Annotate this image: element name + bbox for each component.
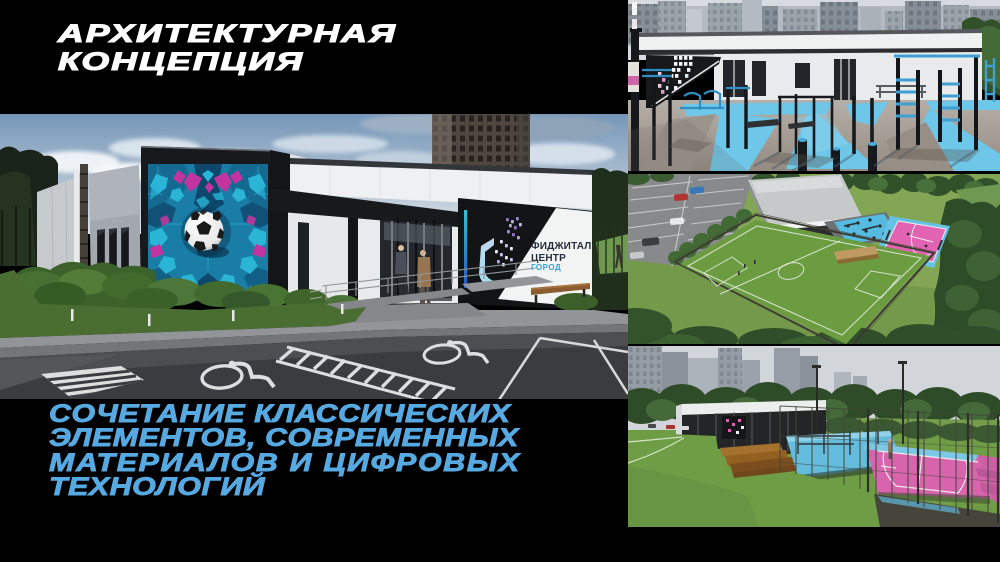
svg-text:ГОРОД: ГОРОД bbox=[531, 263, 561, 272]
svg-text:ФИДЖИТАЛ: ФИДЖИТАЛ bbox=[531, 241, 592, 252]
